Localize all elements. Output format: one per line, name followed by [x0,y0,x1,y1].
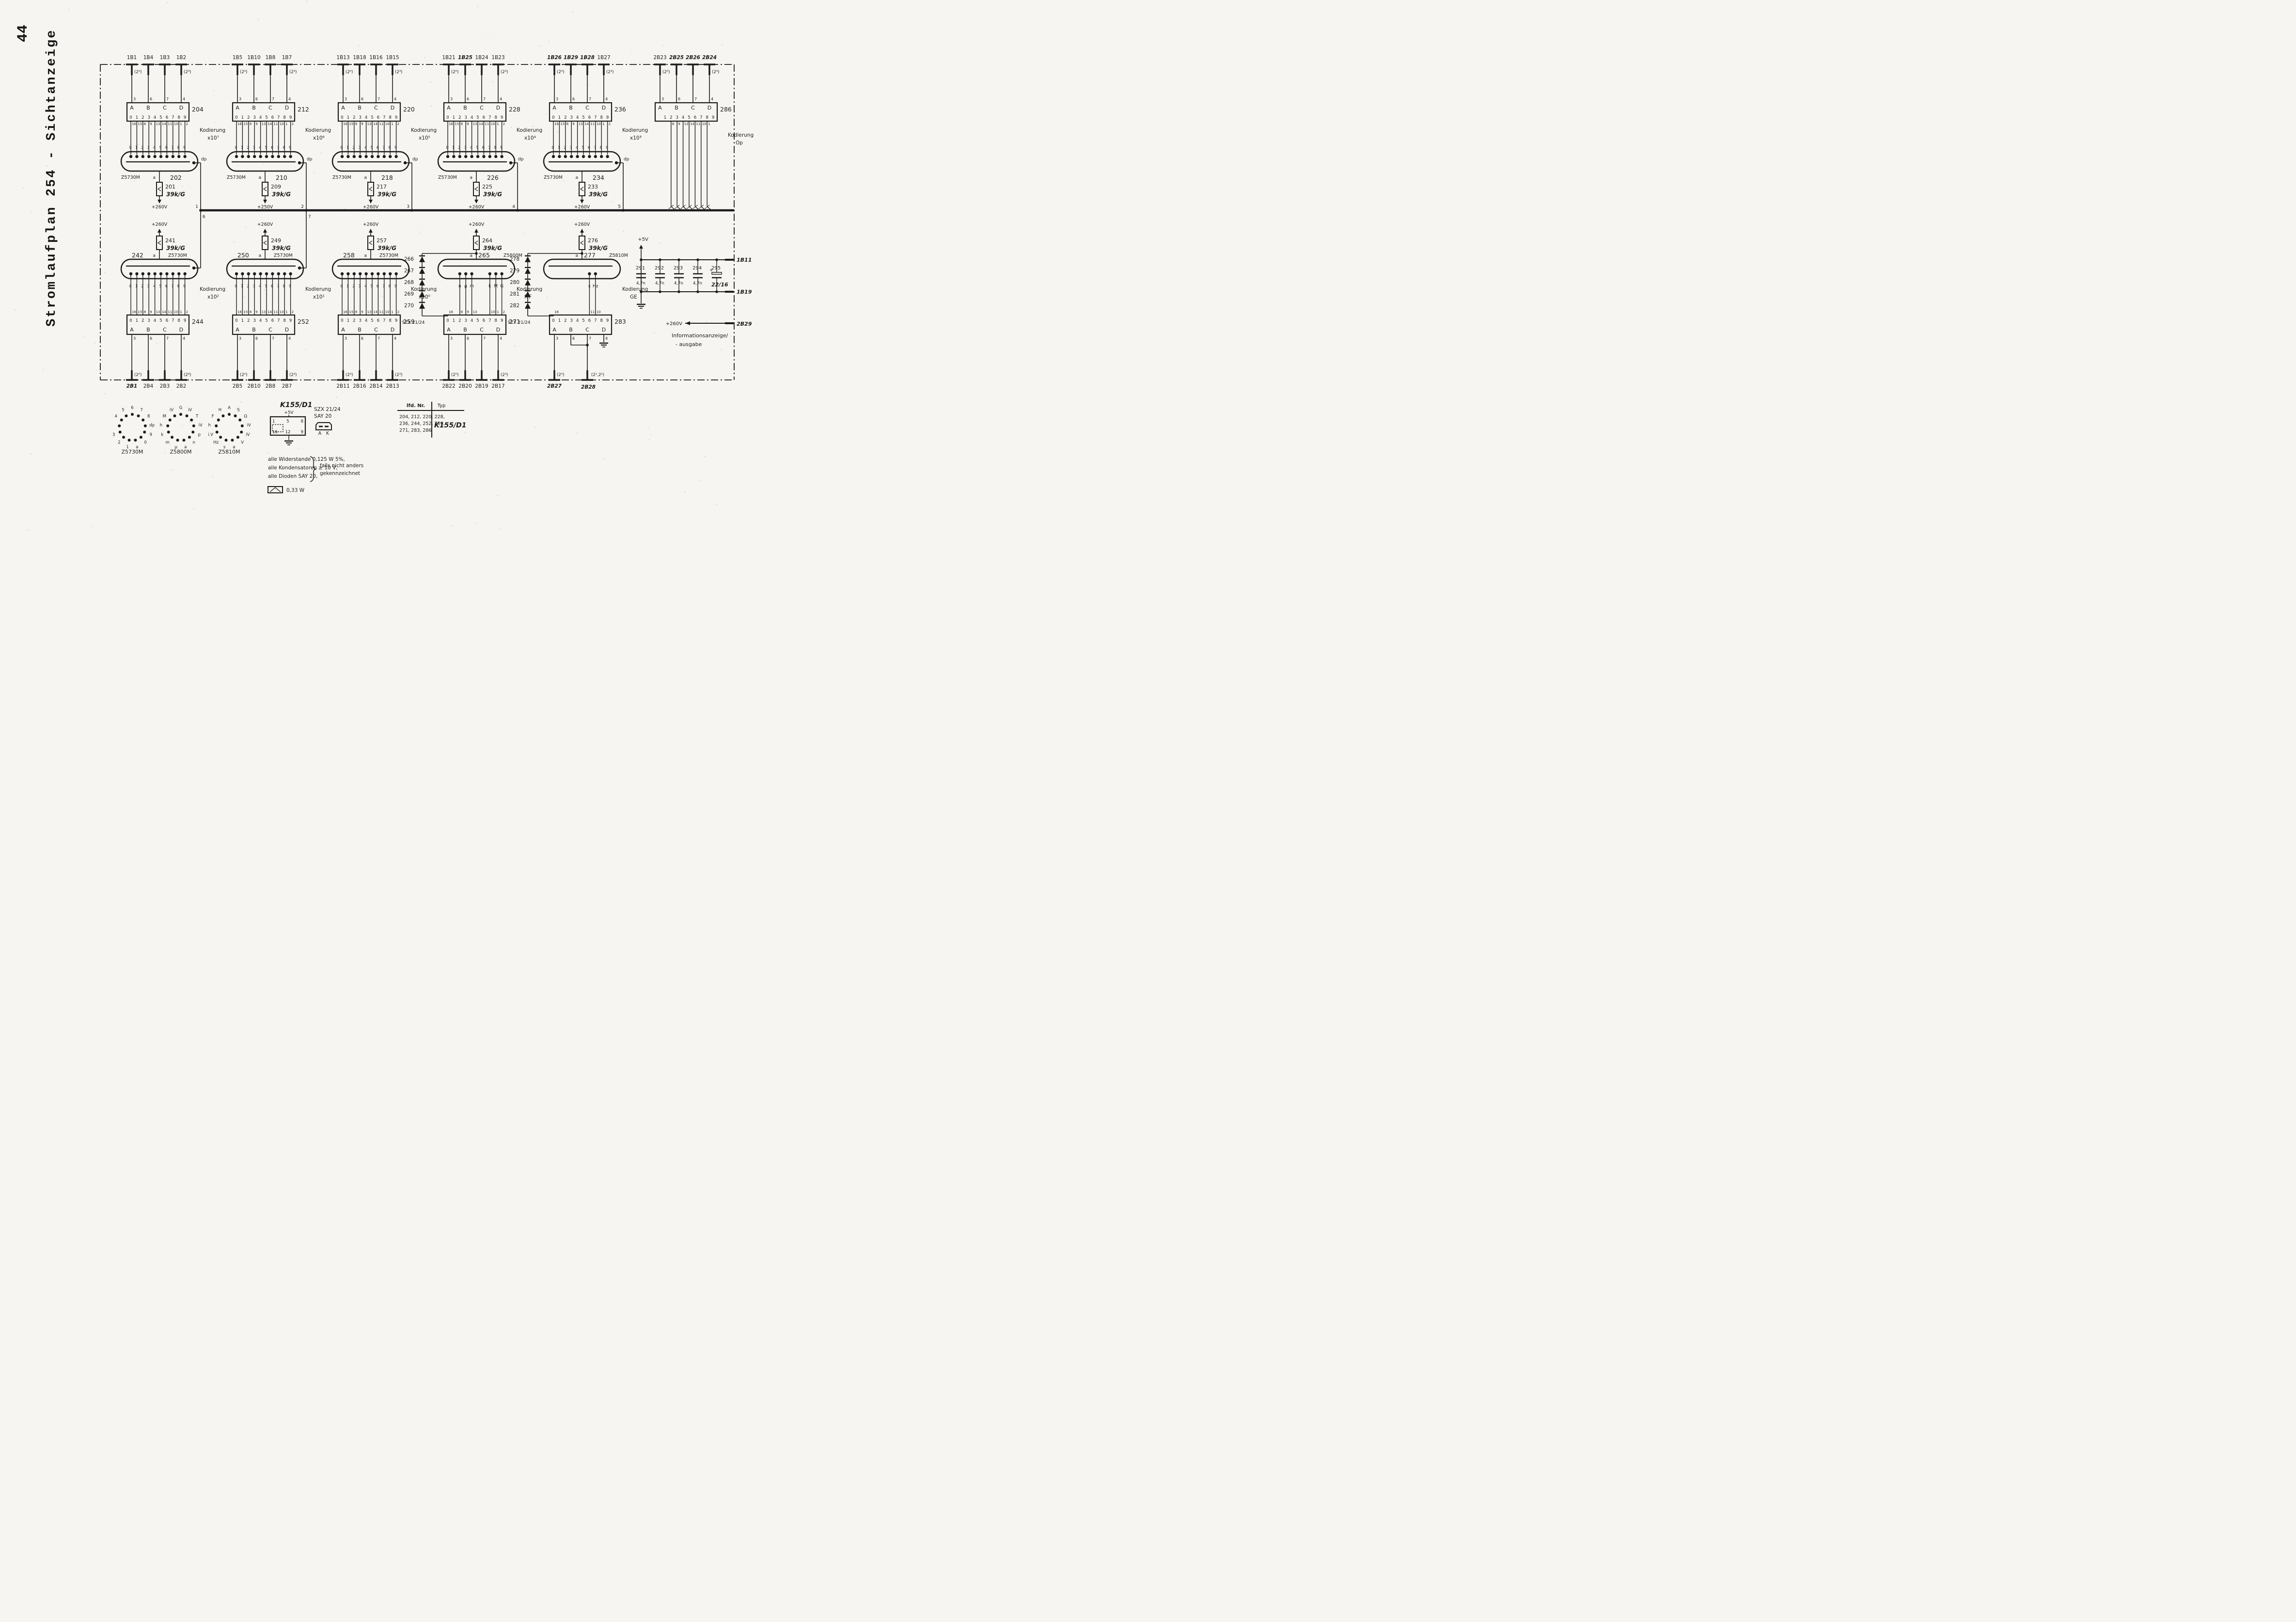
tube-digit: 7 [171,145,173,150]
tube-digit: 2 [247,284,249,288]
tube-type-Z5810M: Z5810M [218,449,240,455]
decoder-input-D: D [179,327,183,333]
resistor-id-225: 225 [482,184,492,190]
pin-number: 10 [174,310,178,314]
pin-number: 13 [367,310,372,314]
bus-junction-3: 3 [407,205,409,209]
pin-number: 6 [255,336,258,341]
tube-digit: 6 [482,145,485,150]
cathode-dot [383,155,386,158]
decoder-digit: 4 [259,318,262,323]
tube-digit: 6 [377,284,379,288]
cathode-dot [482,155,485,158]
paper-speck [488,37,488,38]
pin-number: 6 [467,97,469,101]
dp-label: dp [412,157,418,162]
pinout-pin-M: M [163,414,166,419]
input-label-1B16: 1B16 [369,55,383,61]
resistor-value-249: 39k/G [272,245,291,252]
pin-number: 16 [132,122,136,126]
decoder-input-D: D [285,105,289,111]
pinout-dot [134,439,137,441]
pin-number: 2 [292,122,294,126]
paper-speck [244,297,245,298]
supply-label: +250V [257,205,273,210]
resistor-value-241: 39k/G [166,245,185,252]
tube-digit: 7 [594,145,596,150]
tube-digit: 7 [382,284,385,288]
paper-speck [533,126,534,127]
output-label-2B2: 2B2 [176,383,187,389]
paper-speck [649,439,650,440]
pinout-dot [186,414,189,417]
cathode-dot [594,155,597,158]
note-line: alle Dioden SAY 20, [268,473,317,479]
pinout-pin-0: 0 [144,441,146,445]
exponent-label: (2⁰) [346,373,353,378]
tube-digit: 1 [346,284,349,288]
tube-digit: 3 [359,145,361,150]
decoder-digit: 2 [142,318,144,323]
kodierung-value: x10⁵ [419,135,430,141]
supply-arrow-icon [369,200,373,204]
pin-number: 7 [272,336,274,341]
cathode-dot [494,155,497,158]
decoder-input-C: C [691,105,695,111]
pin-number: 1 [391,122,393,126]
pinout-dot [143,431,146,434]
pin-number: 16 [343,122,347,126]
resistor-264 [473,236,479,250]
output-label-2B27: 2B27 [547,383,562,389]
cathode-dot [476,155,479,158]
pin-number: 8 [355,310,357,314]
diode-282 [525,303,531,309]
paper-speck [499,529,500,530]
info-text: Informationsanzeige/ [672,332,728,339]
pin-number: 15 [560,122,565,126]
decoder-input-A: A [658,105,662,111]
output-label-2B14: 2B14 [369,383,383,389]
tube-digit: 3 [359,284,361,288]
decoder-input-D: D [496,327,500,333]
decoder-input-C: C [268,105,272,111]
tube-digit: 7 [171,284,173,288]
pin-number: 16 [449,310,453,314]
pin-number: 9 [150,122,152,126]
anode-label: a [153,175,156,180]
decoder-digit: 7 [383,318,385,323]
tube-type-label: Z5810M [609,253,628,258]
decoder-digit: 0 [341,318,343,323]
decoder-digit: 7 [700,115,702,120]
supply-label: +260V [469,222,485,227]
nixie-tube-277 [544,259,620,279]
cathode-label-Hz: Hz [593,284,598,289]
pin-number: 11 [590,310,595,314]
paper-speck [511,127,512,128]
paper-speck [371,192,372,193]
tube-digit: 1 [558,145,560,150]
tube-type-label: Z5730M [379,253,398,258]
dp-label: dp [624,157,629,162]
output-label-2B4: 2B4 [143,383,154,389]
cathode-dot [558,155,561,158]
bus-junction-dot [410,209,413,212]
pinout-dot [188,436,191,439]
dp-label: dp [518,157,524,162]
bus-junction-2: 2 [301,205,304,209]
cap-id-295: 295 [711,266,721,271]
pinout-pin-Ω: Ω [244,414,247,419]
tube-digit: 8 [283,284,285,288]
decoder-digit: 0 [129,115,132,120]
output-label-2B13: 2B13 [386,383,399,389]
cathode-label-M: M [494,284,498,289]
decoder-digit: 4 [154,115,156,120]
decoder-digit: 6 [271,318,274,323]
output-label-2B5: 2B5 [233,383,243,389]
pin-number: 15 [349,310,353,314]
pin-number: 2 [292,310,294,314]
tube-type-label: Z5730M [168,253,187,258]
paper-speck [654,332,655,333]
cathode-dot [582,155,585,158]
supply-arrow-icon [157,229,161,233]
decoder-input-B: B [569,105,573,111]
pin-number: 8 [301,419,303,424]
tube-digit: 0 [129,145,131,150]
resistor-276 [579,236,585,250]
pin-number: 15 [138,122,142,126]
table-cell-lfd-nr: 271, 283, 286 [399,428,431,433]
input-label-1B15: 1B15 [386,55,399,61]
decoder-digit: 4 [682,115,684,120]
decoder-digit: 8 [283,115,285,120]
note-line: gekennzeichnet [320,471,360,476]
pin-number: 1 [285,122,287,126]
resistor-value-264: 39k/G [483,245,502,252]
pin-number: 11 [168,122,172,126]
kodierung-label: Kodierung [305,127,331,133]
tube-digit: 9 [289,284,291,288]
output-label-2B1: 2B1 [126,383,138,389]
decoder-input-D: D [708,105,711,111]
paper-speck [23,188,24,189]
pin-number: 7 [483,97,486,101]
diode-268 [419,280,425,285]
diode-id-281: 281 [510,291,519,297]
decoder-digit: 8 [177,115,180,120]
dp-dot [298,161,301,164]
cathode-label-n: n [458,284,461,289]
resistor-value-276: 39k/G [589,245,608,252]
pin-number: 9 [467,310,469,314]
tube-type-label: Z5730M [227,175,246,180]
decoder-digit: 2 [564,115,566,120]
pin-number: 3 [345,336,347,341]
paper-speck [264,289,265,290]
pinout-pin-m: m [166,441,170,445]
decoder-input-D: D [602,105,606,111]
pinout-pin-iV: iV [188,408,192,413]
tube-digit: 5 [159,145,161,150]
pin-number: 10 [385,310,390,314]
input-label-1B1: 1B1 [127,55,137,61]
paper-speck [497,495,498,496]
note-line: alle Widerstande 0,125 W 5%, [268,457,345,462]
pin-number: 3 [661,97,664,101]
paper-speck [336,397,337,398]
paper-speck [309,372,310,373]
pin-number: 7 [483,336,486,341]
tube-digit: 2 [141,145,143,150]
tube-digit: 1 [135,145,138,150]
anode-label: a [258,253,261,258]
paper-speck [659,243,660,244]
paper-speck [267,453,268,454]
tube-digit: 4 [153,284,156,288]
input-label-1B13: 1B13 [336,55,349,61]
power-resistor-symbol-icon [270,488,281,492]
pin-number: 3 [345,97,347,101]
nixie-tube-250 [227,259,303,279]
decoder-digit: 3 [359,318,361,323]
supply-arrow-icon [263,229,267,233]
tube-id-202: 202 [170,174,182,181]
input-label-1B7: 1B7 [282,55,292,61]
tube-digit: 5 [582,145,584,150]
diode-legend-type: SAY 20 [314,413,331,419]
tube-digit: 6 [165,284,168,288]
exponent-label: (2³) [606,70,613,75]
decoder-input-A: A [130,105,134,111]
pin-number: 10 [491,122,495,126]
tube-digit: 7 [277,284,279,288]
pin-number: 14 [690,122,694,126]
diode-270 [419,303,425,309]
paper-speck [358,46,359,47]
pin-number: 1 [391,310,393,314]
pin-number: 2 [503,310,505,314]
paper-speck [104,272,105,273]
tube-digit: 2 [352,145,355,150]
tube-id-210: 210 [276,174,287,181]
tube-digit: 3 [253,145,255,150]
paper-speck [603,459,604,460]
table-header-typ: Typ [437,403,446,409]
resistor-value-217: 39k/G [377,191,396,198]
paper-speck [465,432,466,433]
pin-number: 3 [556,97,558,101]
decoder-digit: 2 [353,318,355,323]
input-label-1B25: 1B25 [458,55,472,61]
exponent-label: (2⁰) [240,373,247,378]
decoder-input-C: C [374,327,378,333]
paper-speck [631,53,632,54]
pinout-pin-p: p [198,433,201,438]
dp-dot [615,161,618,164]
dp-dot [192,267,195,269]
cap-id-291: 291 [636,266,645,271]
cathode-label-s: s [588,284,591,289]
input-label-1B28: 1B28 [580,55,595,61]
tube-id-242: 242 [132,252,143,259]
pin-number: 2 [397,122,399,126]
paper-speck [572,12,573,13]
pinout-dot [169,419,172,422]
pin-number: 3 [556,336,558,341]
pin-number: 10 [280,310,284,314]
supply-arrow-icon [369,229,373,233]
cap-value-292: 4,7n [655,281,664,286]
input-label-1B29: 1B29 [564,55,578,61]
bus-junction-dot [305,209,308,212]
pin-number: 6 [678,97,680,101]
resistor-value-225: 39k/G [483,191,502,198]
kodierung-value: x10² [207,294,219,300]
bus-junction-1: 1 [195,205,198,209]
pin-number: 9 [361,122,363,126]
tube-digit: 0 [235,145,237,150]
pin-number: 1 [180,122,182,126]
decoder-digit: 0 [552,115,554,120]
dp-dot [404,161,407,164]
exponent-label: (2³) [712,70,719,75]
exponent-label: (2⁰) [346,70,353,75]
pin-number: 14 [162,310,166,314]
pin-number: 1 [602,122,604,126]
decoder-digit: 8 [389,318,391,323]
paper-speck [27,530,28,531]
block-id-212: 212 [298,106,309,113]
pin-number: 3 [133,336,136,341]
pin-number: 14 [267,310,272,314]
tube-digit: 6 [271,145,273,150]
pin-number: 15 [138,310,142,314]
tube-digit: 7 [382,145,385,150]
bus-junction-dot [199,209,202,212]
output-label-2B20: 2B20 [458,383,472,389]
pin-number: 9 [361,310,363,314]
exponent-label: (2³) [184,373,191,378]
tube-digit: 4 [259,145,261,150]
pin-number: 7 [377,336,380,341]
decoder-digit: 4 [365,318,367,323]
kodierung-label: Kodierung [200,127,225,133]
pinout-pin-5: 5 [122,408,124,413]
pinout-dot [215,425,218,427]
pin-number: 6 [361,97,363,101]
decoder-input-D: D [391,327,394,333]
kodierung-value: Op [736,140,743,146]
tube-digit: 8 [177,145,180,150]
cap-value-291: 4,7n [636,281,645,286]
decoder-digit: 1 [241,318,244,323]
paper-speck [721,349,722,350]
decoder-input-D: D [285,327,289,333]
paper-speck [547,297,548,298]
pin-number: 11 [273,310,278,314]
paper-speck [651,435,652,436]
resistor-id-209: 209 [271,184,281,190]
decoder-digit: 6 [483,115,485,120]
tube-digit: 8 [283,145,285,150]
decoder-digit: 7 [277,115,280,120]
cathode-dot [129,155,132,158]
pin-number: 10 [702,122,707,126]
supply-label: +260V [257,222,273,227]
bus-junction-4: 4 [512,205,515,209]
decoder-input-D: D [179,105,183,111]
supply-5v-label: +5V [638,237,648,242]
resistor-chevron-icon [158,241,161,245]
tube-digit: 8 [389,284,391,288]
bus-junction-dot [622,209,625,212]
exponent-label: (2⁰) [662,70,670,75]
pin-number: 11 [590,122,595,126]
paper-speck [585,373,586,374]
input-label-1B5: 1B5 [233,55,243,61]
output-label-2B8: 2B8 [266,383,276,389]
pin-number: 5 [286,419,289,424]
tube-digit: 2 [458,145,460,150]
decoder-digit: 8 [706,115,708,120]
cathode-dot [464,155,467,158]
decoder-input-C: C [268,327,272,333]
kodierung-value: x10⁶ [313,135,325,141]
schematic-canvas: 1B131B461B371B24(2⁰)(2³)ABCD204012345678… [0,0,766,541]
nixie-tube-265 [438,259,515,279]
pin-number: 1 [497,122,499,126]
pin-number: 1 [272,419,275,424]
pin-number: 13 [262,122,266,126]
diode-package-icon [316,423,331,430]
decoder-digit: 3 [359,115,361,120]
anode-label: a [364,253,367,258]
pin-number: 11 [379,122,383,126]
decoder-digit: 5 [371,318,373,323]
input-label-2B26: 2B26 [686,55,700,61]
cathode-dot [135,155,138,158]
cathode-dot [446,155,449,158]
pin-number: 13 [156,310,160,314]
pin-number: 16 [132,310,136,314]
decoder-input-B: B [463,105,467,111]
decoder-digit: 0 [129,318,132,323]
decoder-input-D: D [602,327,606,333]
exponent-label: (2⁰) [451,70,458,75]
decoder-input-A: A [552,105,556,111]
decoder-input-A: A [552,327,556,333]
paper-speck [69,9,70,10]
supply-label: +260V [152,205,168,210]
supply-label: +260V [574,222,590,227]
tube-digit: 4 [576,145,578,150]
pinout-dot [241,425,244,427]
tube-digit: 4 [153,145,156,150]
pinout-pin-8: 8 [147,414,150,419]
pinout-dot [144,425,147,427]
anode-label: a [575,253,578,258]
cathode-dot [488,155,491,158]
diode-id-270: 270 [404,303,414,309]
pinout-pin-iV: iV [247,423,251,428]
pin-number: 13 [262,310,266,314]
decoder-digit: 2 [458,318,461,323]
supply-label: +260V [469,205,485,210]
pin-label-1B11: 1B11 [737,257,752,263]
